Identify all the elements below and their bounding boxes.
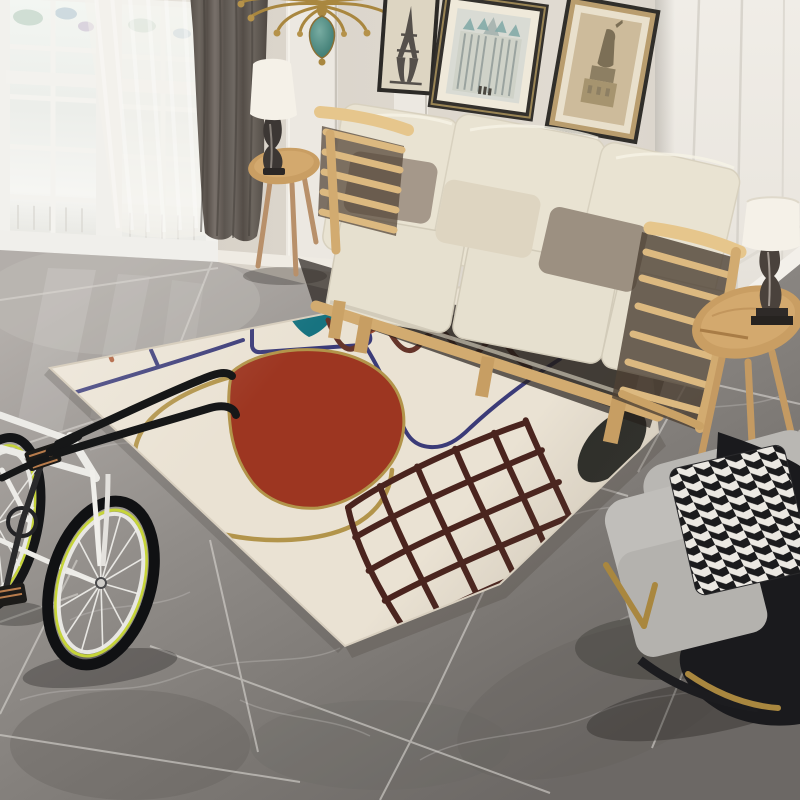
- cathedral-facade: [452, 31, 522, 99]
- frame-cathedral: [428, 0, 549, 122]
- curtain: [190, 0, 268, 241]
- scene-canvas: [0, 0, 800, 800]
- candle-cup: [274, 30, 281, 37]
- arm-front-post: [330, 134, 336, 250]
- candle-cup: [297, 31, 303, 37]
- living-room-photo: [0, 0, 800, 800]
- lamp-shade: [250, 59, 297, 120]
- floor-dark-vein-patch: [10, 690, 250, 800]
- candle-cup: [238, 1, 245, 8]
- frame-eiffel: [377, 0, 440, 96]
- chandelier-hub: [317, 3, 327, 17]
- candle-cup: [341, 31, 347, 37]
- lamp-base: [751, 316, 793, 325]
- floor-dark-vein-patch: [250, 700, 510, 790]
- lamp-base: [263, 168, 285, 175]
- table-shadow: [243, 267, 327, 285]
- lamp-shade: [742, 197, 800, 251]
- candle-cup: [364, 30, 371, 37]
- wheel-hub: [96, 578, 106, 588]
- chandelier-finial: [319, 59, 326, 66]
- candle-cup: [248, 15, 255, 22]
